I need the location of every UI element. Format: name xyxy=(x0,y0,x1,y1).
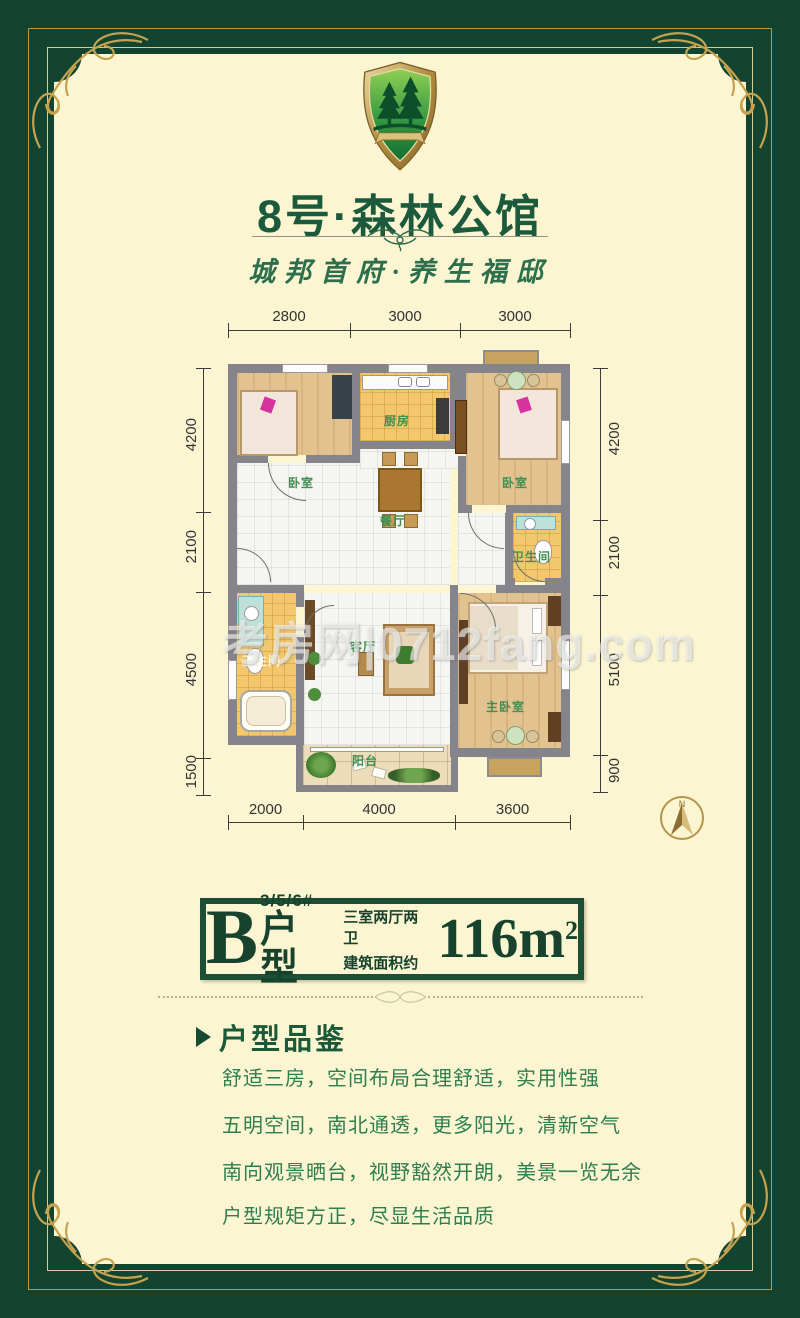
room-label-bathroom-right: 卫生间 xyxy=(512,548,551,565)
dim-line-right xyxy=(600,368,601,792)
dim-tick xyxy=(460,323,461,338)
wall xyxy=(352,441,458,449)
master-cabinet xyxy=(548,712,561,742)
dim-right-4: 900 xyxy=(606,758,623,783)
unit-type-badge: B 3/5/6# 户型 三室两厅两卫 建筑面积约 116m2 xyxy=(200,898,584,980)
dim-tick xyxy=(196,592,211,593)
bedroom-right-chair xyxy=(527,374,540,387)
unit-area: 116m2 xyxy=(437,914,578,964)
divider-ornament-icon xyxy=(373,986,428,1008)
poster-page: 8号·森林公馆 城邦首府·养生福邸 xyxy=(0,0,800,1318)
dim-tick xyxy=(228,323,229,338)
feature-line: 舒适三房，空间布局合理舒适，实用性强 xyxy=(222,1062,642,1091)
corner-flourish-icon xyxy=(644,1162,794,1312)
room-label-master-bedroom: 主卧室 xyxy=(486,698,525,715)
bay-window-bottom xyxy=(487,757,542,777)
dim-tick xyxy=(196,368,211,369)
master-table xyxy=(506,726,525,745)
bathtub-inner xyxy=(246,696,286,726)
corner-flourish-icon xyxy=(6,1162,156,1312)
window xyxy=(282,364,328,373)
wall xyxy=(496,585,570,593)
dim-right-2: 2100 xyxy=(606,536,623,569)
unit-layout: 三室两厅两卫 xyxy=(343,906,427,948)
balcony-plant xyxy=(306,752,336,778)
dim-tick xyxy=(570,323,571,338)
corner-flourish-icon xyxy=(6,6,156,156)
wall xyxy=(228,585,304,593)
balcony-wall xyxy=(296,785,458,792)
dotted-divider xyxy=(158,996,373,998)
room-label-kitchen: 厨房 xyxy=(384,412,410,429)
dim-tick xyxy=(593,755,608,756)
dim-top-3: 3000 xyxy=(460,308,570,325)
dim-line-left xyxy=(203,368,204,795)
dim-bottom-1: 2000 xyxy=(228,801,303,818)
dim-left-1: 4200 xyxy=(183,418,200,451)
dining-chair xyxy=(382,452,396,466)
window xyxy=(388,364,428,373)
watermark: 考房网|0712fang.com xyxy=(222,608,696,674)
dim-tick xyxy=(570,815,571,830)
dining-chair xyxy=(404,452,418,466)
entry-door-leaf xyxy=(455,400,467,454)
dim-tick xyxy=(196,512,211,513)
dining-chair xyxy=(404,514,418,528)
wall xyxy=(506,505,570,513)
window xyxy=(561,420,570,464)
dim-left-4: 1500 xyxy=(183,755,200,788)
bedroom-left-desk xyxy=(332,375,352,419)
master-chair xyxy=(492,730,505,743)
title-ornament-icon xyxy=(364,222,436,252)
dotted-divider xyxy=(428,996,643,998)
features-heading-label: 户型品鉴 xyxy=(219,1016,347,1058)
room-label-bedroom-right: 卧室 xyxy=(502,474,528,491)
wall xyxy=(228,736,304,745)
corner-flourish-icon xyxy=(644,6,794,156)
feature-line: 户型规矩方正，尽显生活品质 xyxy=(222,1200,642,1229)
room-label-dining: 餐厅 xyxy=(380,512,406,529)
dim-tick xyxy=(593,520,608,521)
room-label-bedroom-left: 卧室 xyxy=(288,474,314,491)
bedroom-right-table xyxy=(507,371,526,390)
dim-left-3: 4500 xyxy=(183,653,200,686)
dim-top-2: 3000 xyxy=(350,308,460,325)
dim-tick xyxy=(196,795,211,796)
wall xyxy=(450,748,570,757)
unit-area-exponent: 2 xyxy=(565,916,578,945)
kitchen-sink xyxy=(398,377,412,387)
dining-table xyxy=(378,468,422,512)
building-numbers: 3/5/6# xyxy=(260,891,331,911)
wall xyxy=(228,455,268,463)
unit-area-prefix: 建筑面积约 xyxy=(343,952,427,973)
balcony-plant xyxy=(388,768,440,783)
kitchen-sink xyxy=(416,377,430,387)
dim-right-1: 4200 xyxy=(606,422,623,455)
features-heading: 户型品鉴 xyxy=(196,1016,347,1058)
arrow-right-icon xyxy=(196,1027,211,1047)
bedroom-right-chair xyxy=(494,374,507,387)
dim-bottom-3: 3600 xyxy=(455,801,570,818)
dim-tick xyxy=(593,792,608,793)
compass-north-icon: N xyxy=(658,794,706,842)
dim-top-1: 2800 xyxy=(228,308,350,325)
forest-shield-logo-icon xyxy=(356,60,444,174)
dim-left-2: 2100 xyxy=(183,530,200,563)
master-chair xyxy=(526,730,539,743)
dim-bottom-2: 4000 xyxy=(303,801,455,818)
feature-line: 南向观景晒台，视野豁然开朗，美景一览无余 xyxy=(222,1156,642,1185)
feature-line: 五明空间，南北通透，更多阳光，清新空气 xyxy=(222,1109,642,1138)
unit-suffix: 户型 xyxy=(260,911,331,987)
wall xyxy=(306,455,360,463)
wall xyxy=(458,505,472,513)
dim-line-top xyxy=(228,330,570,331)
room-label-balcony: 阳台 xyxy=(352,752,378,769)
wall xyxy=(458,364,466,404)
bathroom-right-basin xyxy=(524,518,536,530)
plant xyxy=(308,688,321,701)
dim-tick xyxy=(593,368,608,369)
bathroom-right-vanity xyxy=(516,516,556,530)
kitchen-fridge xyxy=(436,398,449,434)
dim-line-bottom xyxy=(228,822,570,823)
dim-tick xyxy=(350,323,351,338)
project-tagline: 城邦首府·养生福邸 xyxy=(0,250,800,289)
unit-letter: B xyxy=(206,904,258,970)
dim-tick xyxy=(593,595,608,596)
